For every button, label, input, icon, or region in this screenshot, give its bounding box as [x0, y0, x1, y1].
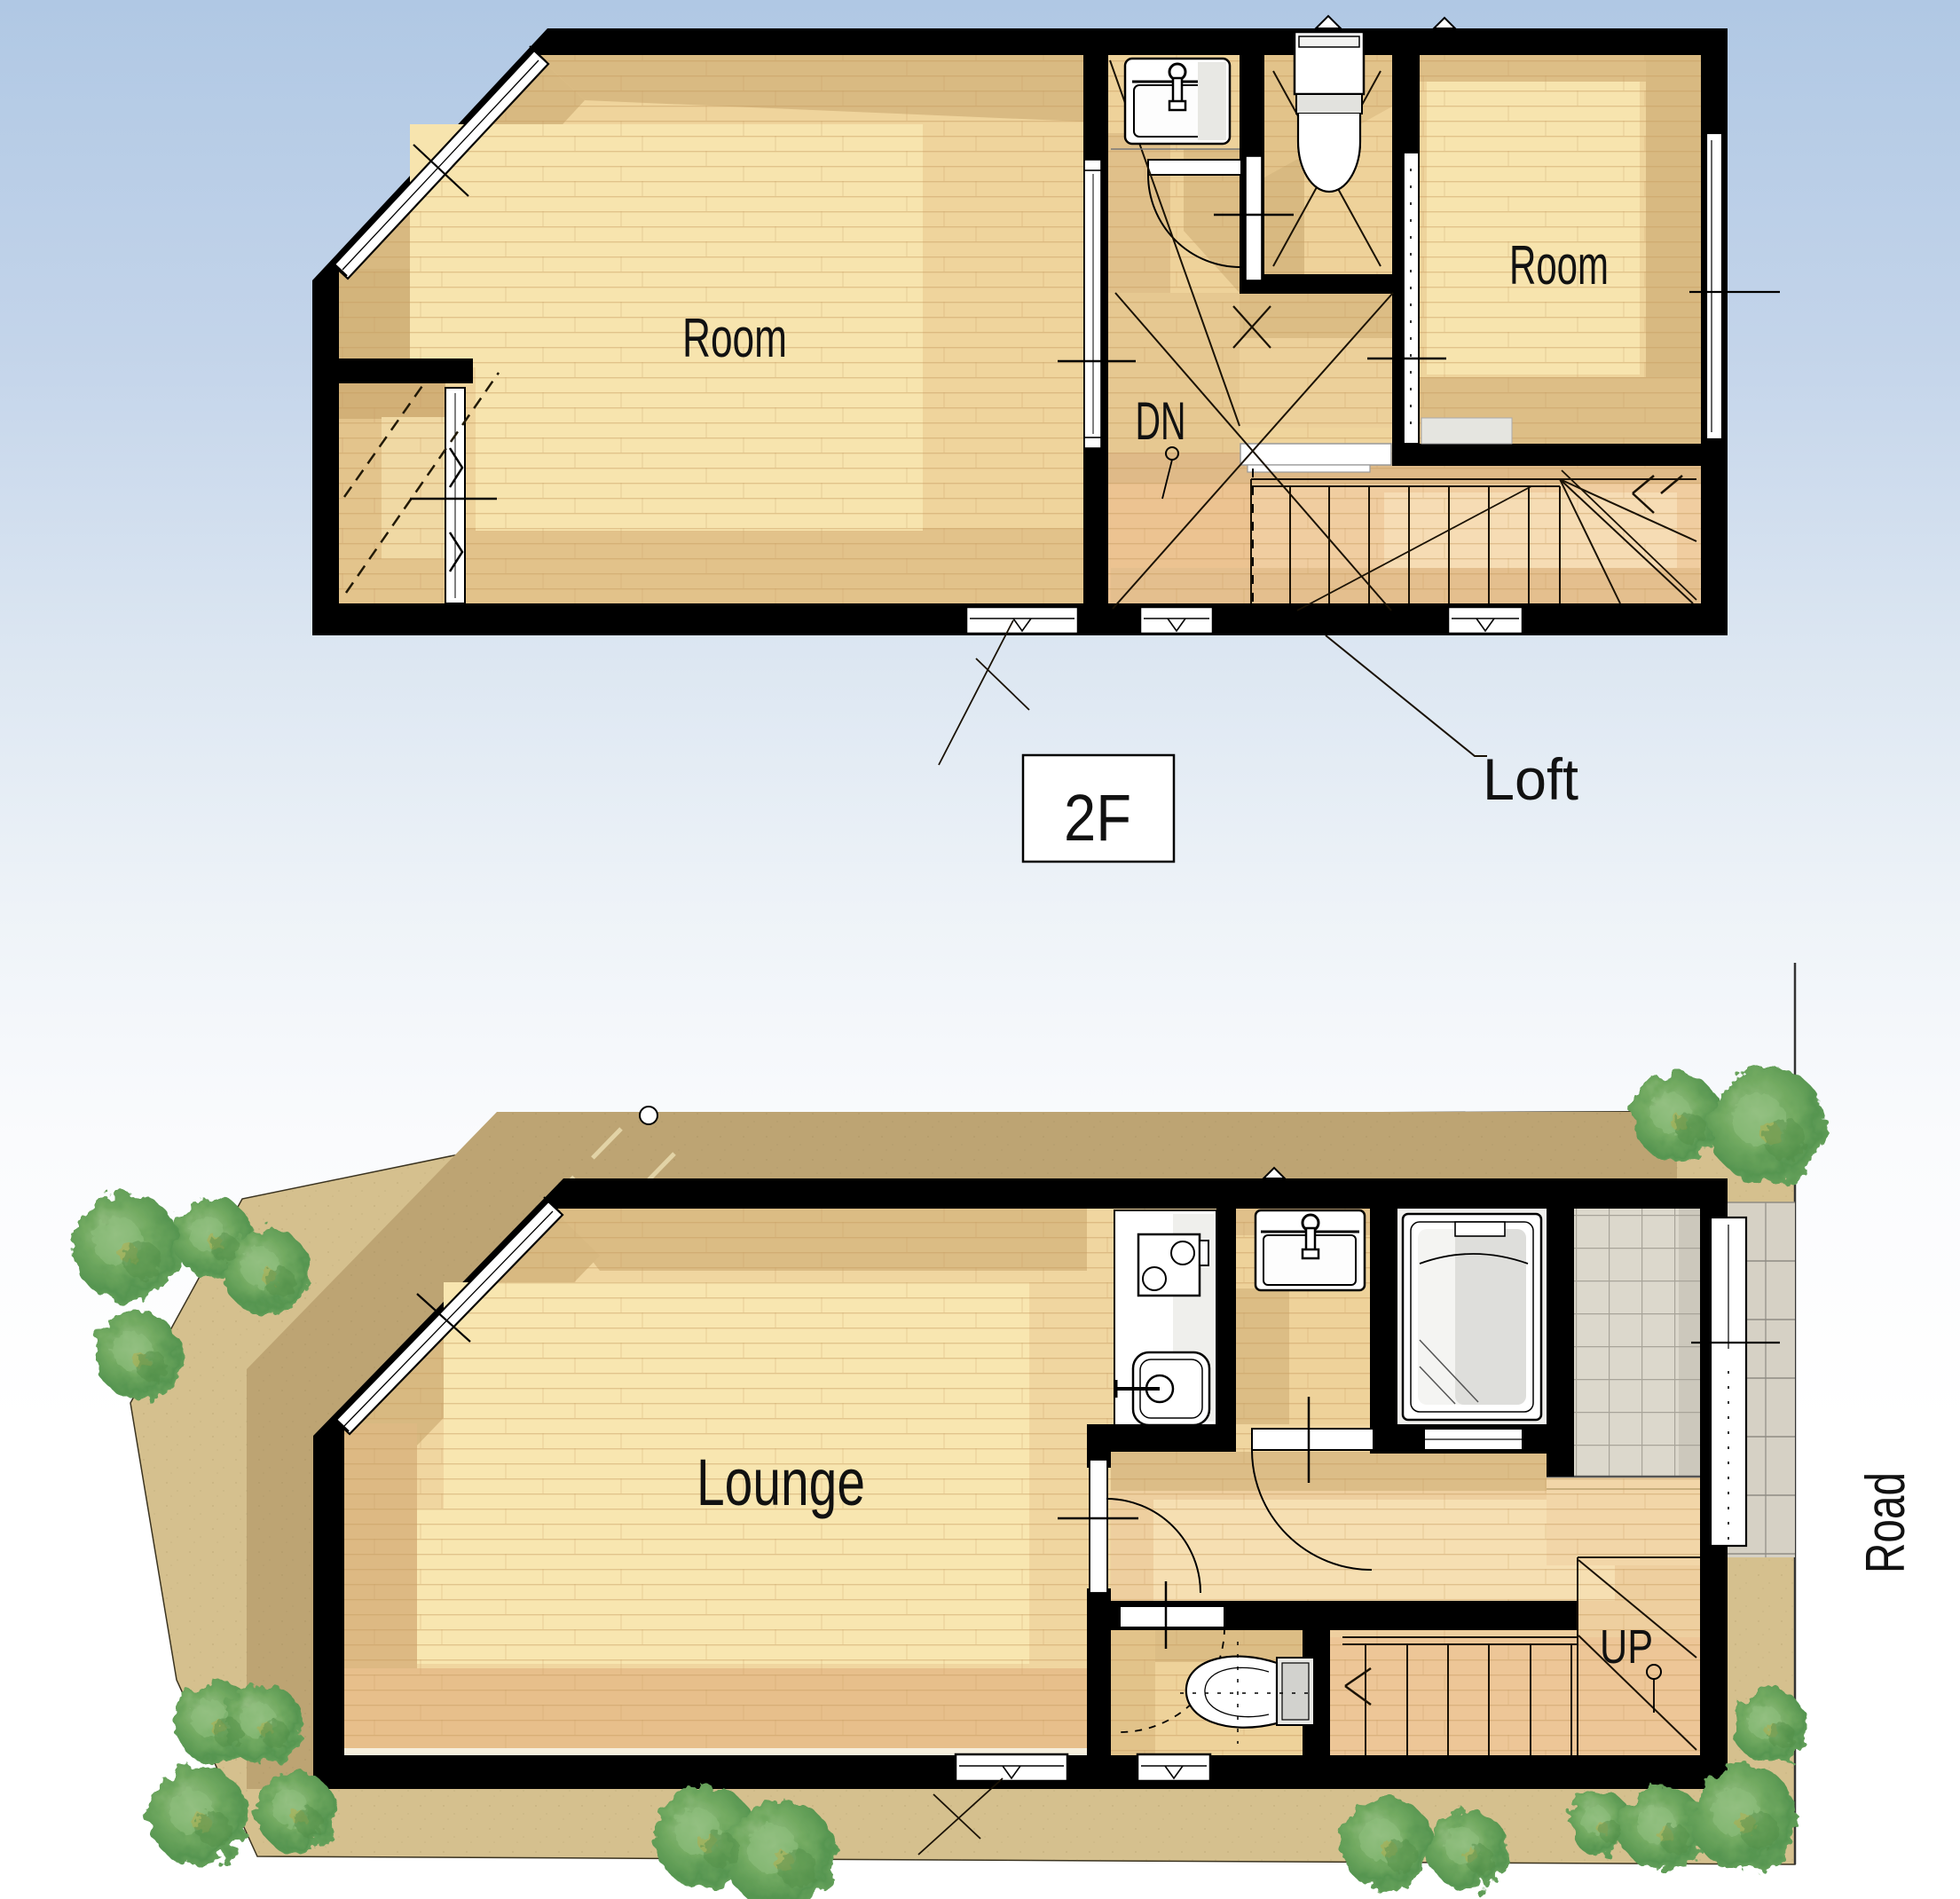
svg-text:DN: DN [1136, 391, 1186, 451]
svg-text:Room: Room [1509, 235, 1609, 296]
svg-text:2F: 2F [1064, 781, 1131, 855]
svg-text:Road: Road [1855, 1472, 1917, 1573]
svg-text:Room: Room [682, 308, 787, 369]
svg-text:Loft: Loft [1483, 746, 1578, 812]
svg-text:UP: UP [1600, 1620, 1653, 1674]
svg-text:Lounge: Lounge [697, 1446, 865, 1519]
